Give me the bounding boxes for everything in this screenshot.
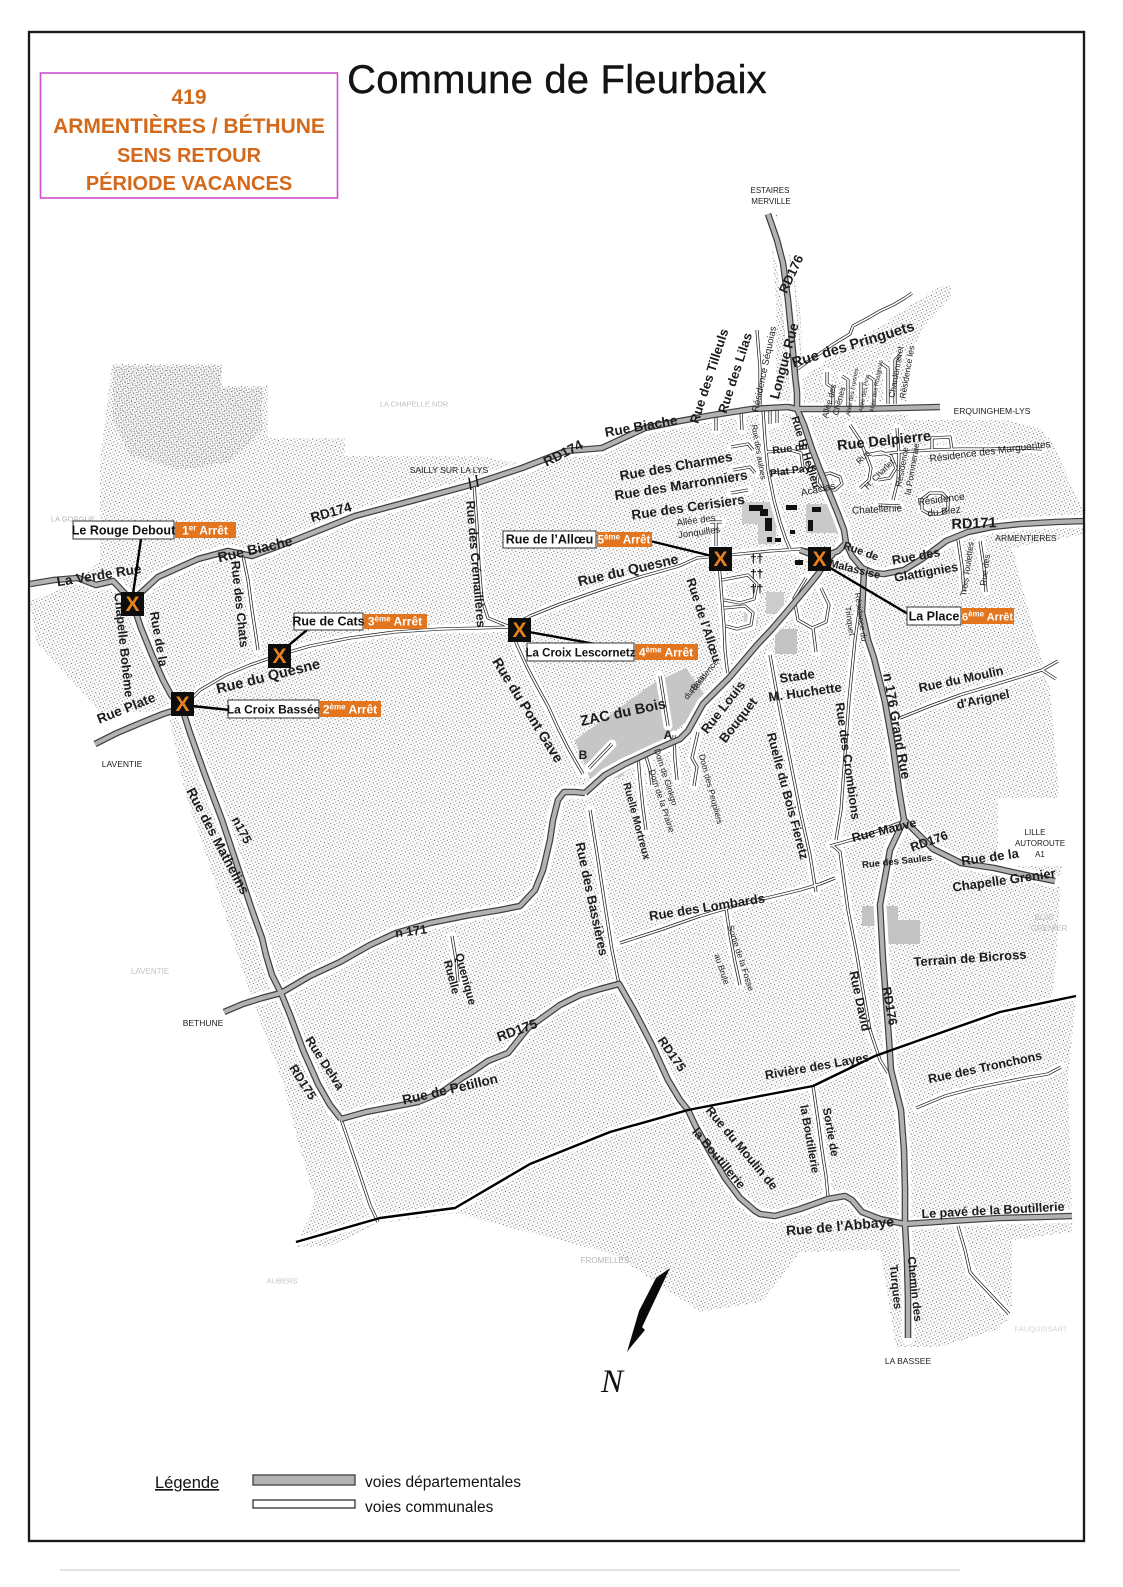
svg-text:FAUQUISSART: FAUQUISSART bbox=[1015, 1325, 1068, 1334]
svg-text:ARMENTIERES: ARMENTIERES bbox=[995, 533, 1057, 543]
svg-text:X: X bbox=[175, 693, 189, 716]
svg-text:419: 419 bbox=[171, 86, 206, 109]
svg-text:voies communales: voies communales bbox=[365, 1499, 494, 1516]
svg-text:Commune de Fleurbaix: Commune de Fleurbaix bbox=[347, 58, 767, 102]
svg-text:A1: A1 bbox=[1035, 850, 1045, 859]
svg-text:BOIS: BOIS bbox=[1034, 913, 1053, 922]
svg-text:ESTAIRES: ESTAIRES bbox=[751, 186, 790, 195]
svg-text:Le Rouge Debout: Le Rouge Debout bbox=[72, 523, 176, 537]
svg-text:Rue de l’Allœu: Rue de l’Allœu bbox=[506, 533, 594, 547]
svg-text:A: A bbox=[664, 728, 673, 742]
svg-text:ERQUINGHEM-LYS: ERQUINGHEM-LYS bbox=[954, 406, 1031, 416]
svg-text:††: †† bbox=[750, 567, 763, 581]
svg-text:RD171: RD171 bbox=[951, 515, 997, 533]
svg-text:MERVILLE: MERVILLE bbox=[751, 197, 790, 206]
svg-text:SAILLY SUR LA LYS: SAILLY SUR LA LYS bbox=[410, 465, 489, 475]
svg-text:LA BASSEE: LA BASSEE bbox=[885, 1356, 932, 1366]
svg-text:X: X bbox=[125, 593, 139, 616]
svg-text:Rue de Cats: Rue de Cats bbox=[292, 615, 364, 629]
svg-text:AUBERS: AUBERS bbox=[267, 1277, 298, 1286]
svg-text:N: N bbox=[600, 1364, 625, 1400]
svg-text:La Croix Bassée: La Croix Bassée bbox=[227, 702, 321, 716]
svg-text:LILLE: LILLE bbox=[1025, 828, 1046, 837]
svg-text:X: X bbox=[713, 548, 727, 571]
svg-text:††: †† bbox=[750, 582, 763, 596]
svg-text:X: X bbox=[512, 619, 526, 642]
svg-text:LAVENTIE: LAVENTIE bbox=[131, 967, 169, 976]
svg-text:Légende: Légende bbox=[155, 1474, 219, 1492]
svg-text:LA CHAPELLE NDR: LA CHAPELLE NDR bbox=[380, 400, 449, 409]
svg-text:FROMELLES: FROMELLES bbox=[581, 1256, 629, 1265]
svg-text:AUTOROUTE: AUTOROUTE bbox=[1015, 839, 1065, 848]
svg-text:X: X bbox=[272, 645, 286, 668]
svg-text:BETHUNE: BETHUNE bbox=[183, 1018, 224, 1028]
svg-text:B: B bbox=[579, 748, 588, 762]
svg-text:X: X bbox=[812, 548, 826, 571]
svg-text:La Croix Lescornetz: La Croix Lescornetz bbox=[526, 647, 636, 659]
svg-text:LAVENTIE: LAVENTIE bbox=[102, 759, 143, 769]
svg-text:††: †† bbox=[750, 552, 763, 566]
svg-text:GRENIER: GRENIER bbox=[1031, 924, 1068, 933]
svg-text:PÉRIODE VACANCES: PÉRIODE VACANCES bbox=[86, 172, 292, 195]
svg-text:SENS RETOUR: SENS RETOUR bbox=[117, 145, 262, 167]
svg-text:La Place: La Place bbox=[909, 609, 960, 623]
svg-text:ARMENTIÈRES / BÉTHUNE: ARMENTIÈRES / BÉTHUNE bbox=[53, 115, 325, 138]
svg-text:voies départementales: voies départementales bbox=[365, 1474, 521, 1491]
